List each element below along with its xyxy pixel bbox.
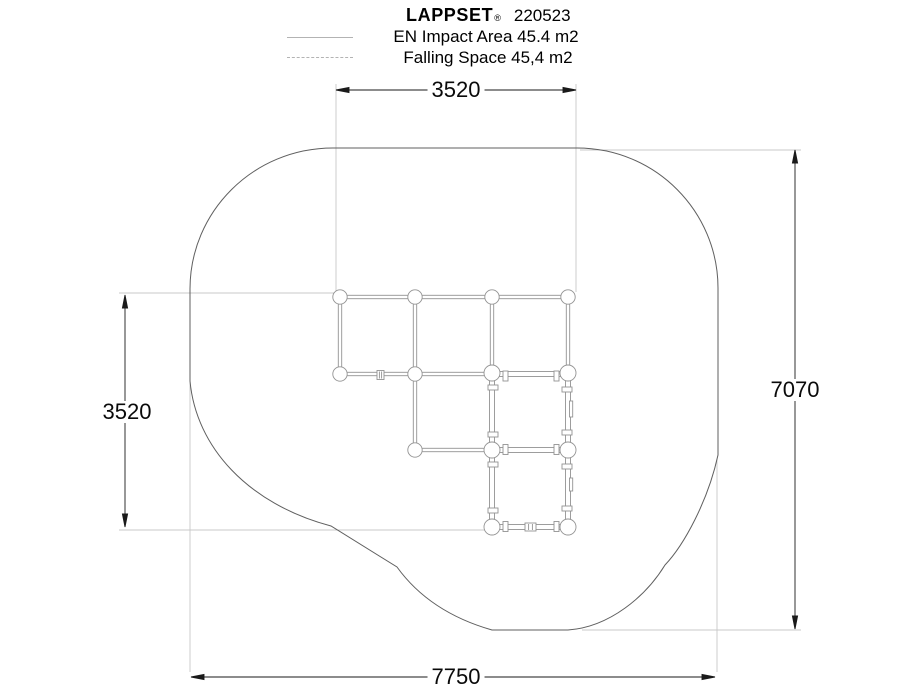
clamp	[562, 506, 572, 511]
beam	[413, 374, 416, 450]
title-block: LAPPSET® 220523	[406, 5, 571, 26]
post	[408, 367, 422, 381]
dimension-lines	[122, 87, 797, 679]
post	[560, 519, 576, 535]
dimension-label-left: 3520	[99, 401, 156, 423]
brand-logo: LAPPSET	[406, 5, 493, 26]
clamp	[488, 462, 498, 467]
post	[333, 367, 347, 381]
beam	[415, 372, 492, 375]
beam	[415, 295, 492, 298]
arrow-down-icon	[792, 616, 797, 629]
post	[408, 290, 422, 304]
dimension-label-bottom: 7750	[428, 666, 485, 688]
arrow-right-icon	[563, 87, 576, 92]
clamp	[554, 522, 559, 532]
dimension-label-right: 7070	[767, 379, 824, 401]
connector	[377, 371, 384, 380]
post	[561, 290, 575, 304]
step	[525, 523, 536, 531]
arrow-left-icon	[191, 674, 204, 679]
legend-falling-space-label: Falling Space 45,4 m2	[403, 48, 572, 68]
arrow-right-icon	[702, 674, 715, 679]
post	[484, 365, 500, 381]
beam	[566, 297, 569, 374]
beam	[338, 297, 341, 374]
beam	[340, 295, 415, 298]
arrow-down-icon	[122, 514, 127, 527]
post	[333, 290, 347, 304]
clamp	[503, 371, 508, 381]
clamp	[562, 430, 572, 435]
label-strip	[570, 478, 573, 491]
clamp	[554, 445, 559, 455]
clamp	[562, 387, 572, 392]
bottom-step-detail	[525, 523, 536, 531]
clamp	[488, 385, 498, 390]
legend-solid-line-icon	[287, 37, 353, 38]
clamp	[488, 432, 498, 437]
dimension-label-top: 3520	[428, 79, 485, 101]
post	[560, 442, 576, 458]
product-number: 220523	[514, 6, 571, 26]
play-structure	[333, 290, 576, 535]
beam	[413, 297, 416, 374]
registered-mark: ®	[494, 13, 501, 23]
clamp	[503, 522, 508, 532]
posts	[333, 290, 576, 535]
clamp	[562, 464, 572, 469]
beam	[415, 448, 492, 451]
rope-connector	[377, 371, 384, 380]
post	[560, 365, 576, 381]
arrow-up-icon	[122, 295, 127, 308]
post	[408, 443, 422, 457]
post	[485, 290, 499, 304]
label-strip	[570, 401, 573, 417]
arrow-left-icon	[336, 87, 349, 92]
extension-lines	[119, 84, 801, 672]
plan-drawing	[0, 0, 920, 690]
beam	[492, 295, 568, 298]
technical-drawing-canvas: LAPPSET® 220523 EN Impact Area 45.4 m2 F…	[0, 0, 920, 690]
impact-area-outline	[190, 148, 718, 630]
legend-dashed-line-icon	[287, 57, 353, 58]
post	[484, 519, 500, 535]
legend-impact-area-label: EN Impact Area 45.4 m2	[393, 27, 578, 47]
beam	[490, 297, 493, 374]
clamp	[488, 508, 498, 513]
clamp	[554, 371, 559, 381]
panel-beam	[490, 450, 495, 527]
arrow-up-icon	[792, 150, 797, 163]
clamp	[503, 445, 508, 455]
post	[484, 442, 500, 458]
